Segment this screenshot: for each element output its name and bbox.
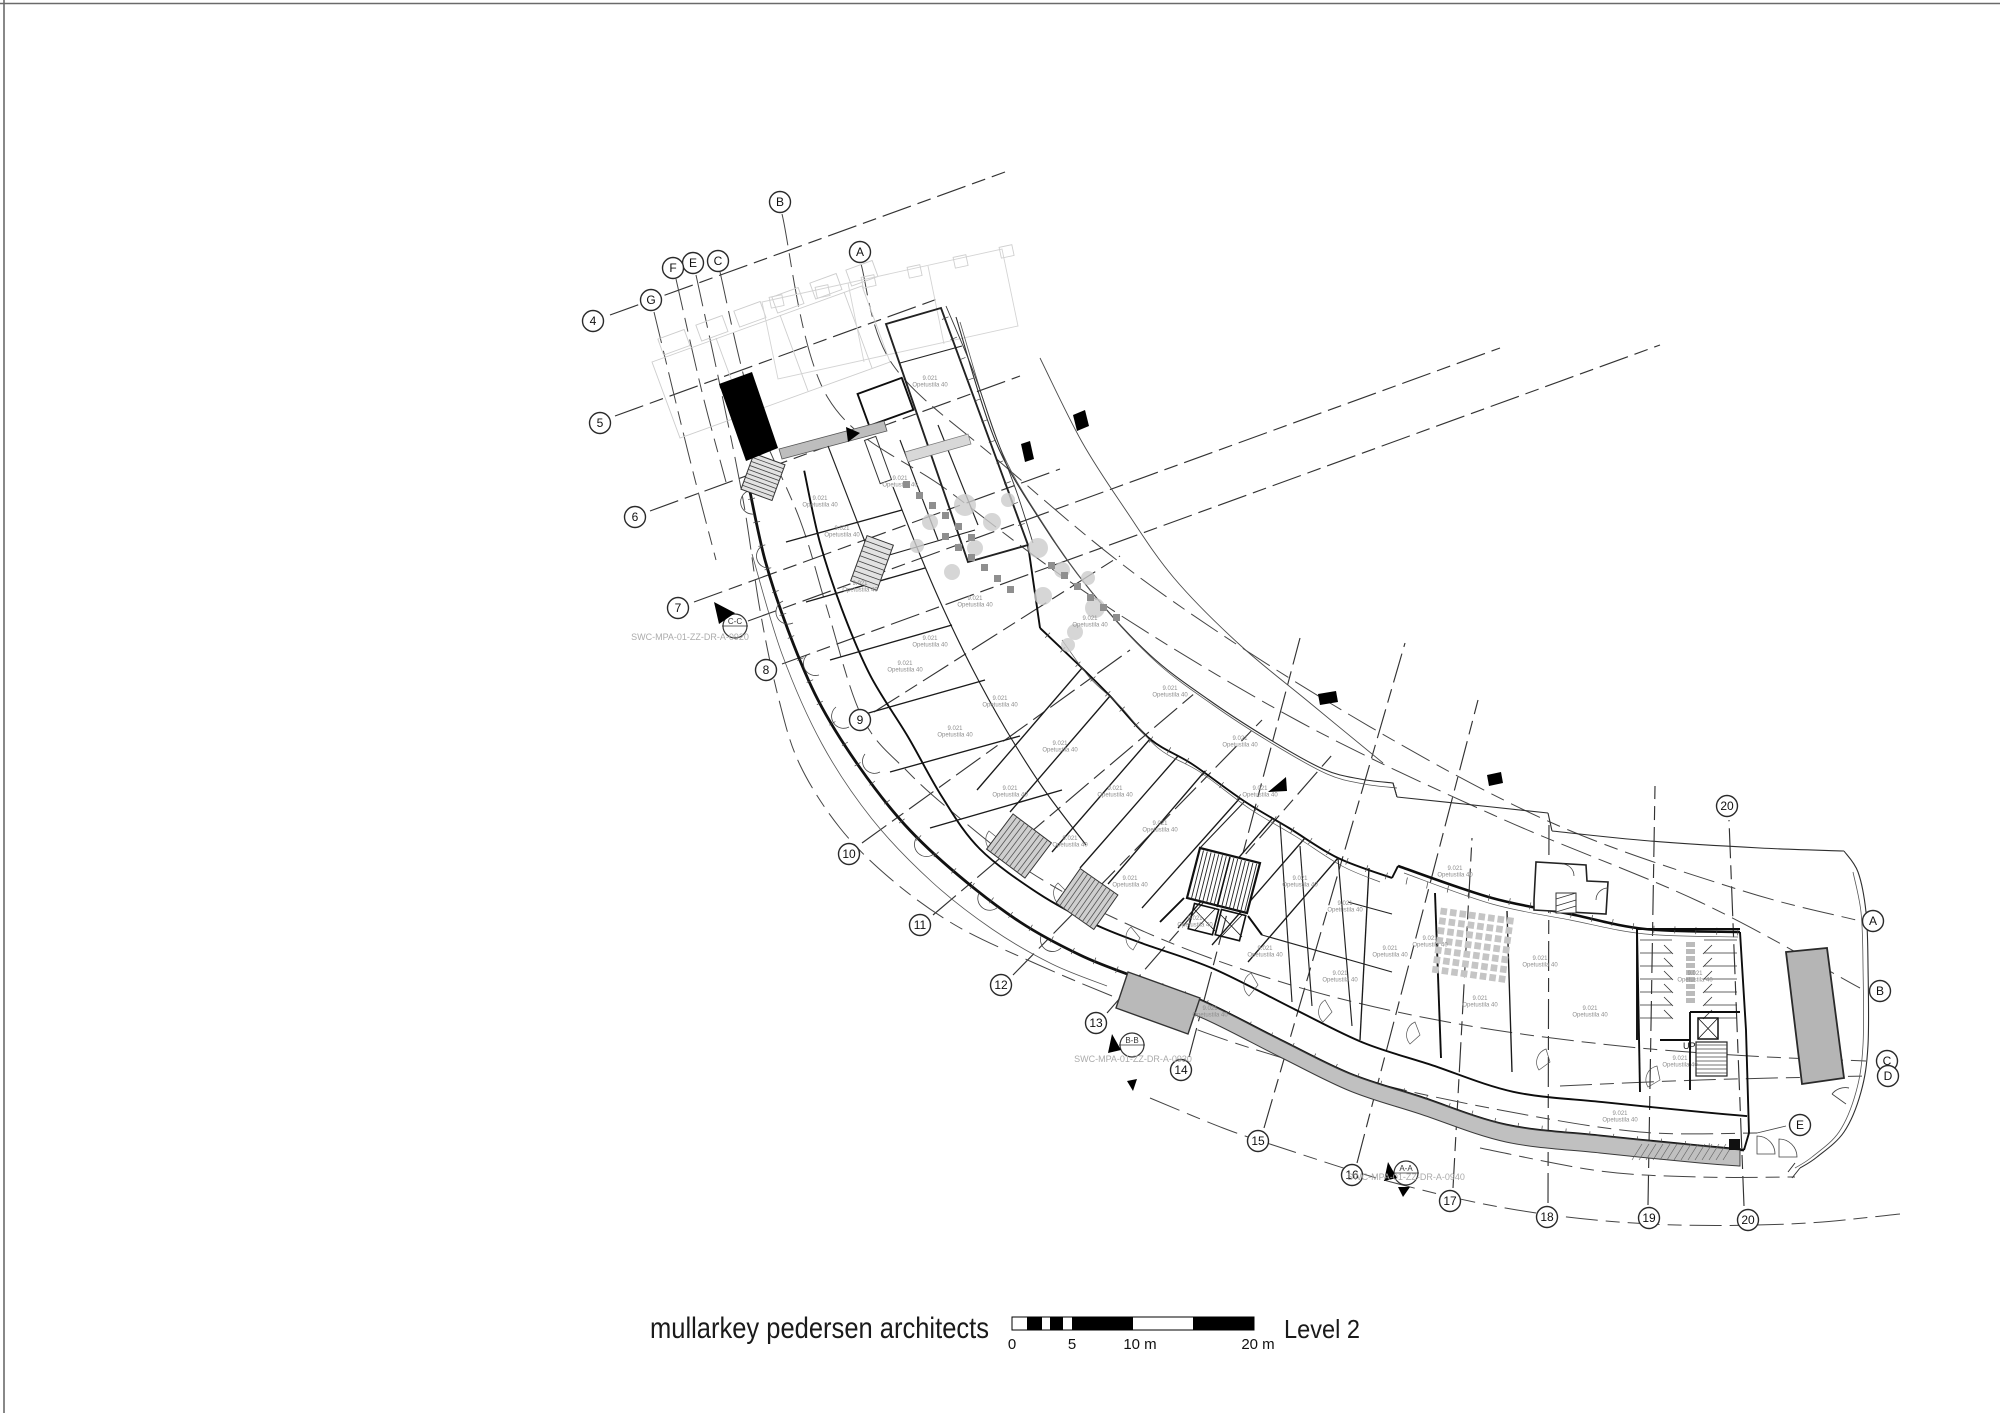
svg-text:9.021Opetustila 40: 9.021Opetustila 40: [912, 376, 948, 389]
svg-text:4: 4: [590, 314, 597, 328]
svg-text:9.021Opetustila 40: 9.021Opetustila 40: [1242, 786, 1278, 799]
svg-text:SWC-MPA-01-ZZ-DR-A-0930: SWC-MPA-01-ZZ-DR-A-0930: [1074, 1054, 1192, 1064]
svg-text:G: G: [646, 293, 655, 307]
svg-text:9: 9: [857, 713, 864, 727]
svg-text:D: D: [1884, 1069, 1893, 1083]
svg-text:E: E: [1796, 1118, 1804, 1132]
svg-text:B-B: B-B: [1125, 1036, 1138, 1045]
svg-text:18: 18: [1540, 1210, 1554, 1224]
svg-text:5: 5: [597, 416, 604, 430]
svg-text:9.021Opetustila 40: 9.021Opetustila 40: [1142, 821, 1178, 834]
svg-text:C: C: [714, 254, 723, 268]
svg-text:9.021Opetustila 40: 9.021Opetustila 40: [1572, 1006, 1608, 1019]
svg-text:14: 14: [1174, 1063, 1188, 1077]
svg-text:9.021Opetustila 40: 9.021Opetustila 40: [1522, 956, 1558, 969]
svg-text:9.021Opetustila 40: 9.021Opetustila 40: [1097, 786, 1133, 799]
svg-text:9.021Opetustila 40: 9.021Opetustila 40: [887, 661, 923, 674]
svg-text:9.021Opetustila 40: 9.021Opetustila 40: [1072, 616, 1108, 629]
svg-text:9.021Opetustila 40: 9.021Opetustila 40: [882, 476, 918, 489]
svg-text:9.021Opetustila 40: 9.021Opetustila 40: [1437, 866, 1473, 879]
svg-text:15: 15: [1251, 1134, 1265, 1148]
svg-text:11: 11: [914, 918, 927, 932]
svg-text:9.021Opetustila 40: 9.021Opetustila 40: [912, 636, 948, 649]
svg-text:9.021Opetustila 40: 9.021Opetustila 40: [1677, 971, 1713, 984]
svg-text:B: B: [1876, 984, 1884, 998]
svg-text:9.021Opetustila 40: 9.021Opetustila 40: [937, 726, 973, 739]
svg-text:C-C: C-C: [728, 617, 742, 626]
svg-text:8: 8: [763, 663, 770, 677]
svg-text:0: 0: [1008, 1336, 1016, 1353]
svg-text:9.021Opetustila 40: 9.021Opetustila 40: [1462, 996, 1498, 1009]
svg-text:SWC-MPA-01-ZZ-DR-A-0940: SWC-MPA-01-ZZ-DR-A-0940: [1347, 1172, 1465, 1182]
svg-text:Level 2: Level 2: [1284, 1314, 1360, 1344]
svg-text:9.021Opetustila 40: 9.021Opetustila 40: [802, 496, 838, 509]
svg-text:E: E: [689, 256, 697, 270]
svg-text:9.021Opetustila 40: 9.021Opetustila 40: [1177, 916, 1213, 929]
svg-text:7: 7: [675, 601, 682, 615]
svg-text:9.021Opetustila 40: 9.021Opetustila 40: [1112, 876, 1148, 889]
svg-text:9.021Opetustila 40: 9.021Opetustila 40: [1152, 686, 1188, 699]
svg-text:B: B: [776, 195, 784, 209]
svg-text:9.021Opetustila 40: 9.021Opetustila 40: [1052, 836, 1088, 849]
svg-text:9.021Opetustila 40: 9.021Opetustila 40: [1322, 971, 1358, 984]
svg-text:9.021Opetustila 40: 9.021Opetustila 40: [824, 526, 860, 539]
svg-text:SWC-MPA-01-ZZ-DR-A-0920: SWC-MPA-01-ZZ-DR-A-0920: [631, 632, 749, 642]
svg-text:12: 12: [994, 978, 1008, 992]
svg-text:A: A: [1869, 914, 1877, 928]
svg-text:10: 10: [842, 847, 856, 861]
svg-text:20: 20: [1720, 799, 1734, 813]
svg-text:9.021Opetustila 40: 9.021Opetustila 40: [1282, 876, 1318, 889]
svg-text:9.021Opetustila 40: 9.021Opetustila 40: [1042, 741, 1078, 754]
svg-text:9.021Opetustila 40: 9.021Opetustila 40: [1602, 1111, 1638, 1124]
svg-text:A: A: [856, 245, 864, 259]
svg-text:9.021Opetustila 40: 9.021Opetustila 40: [1372, 946, 1408, 959]
svg-text:9.021Opetustila 40: 9.021Opetustila 40: [1662, 1056, 1698, 1069]
svg-text:6: 6: [632, 510, 639, 524]
svg-text:20 m: 20 m: [1241, 1336, 1274, 1353]
svg-text:F: F: [669, 261, 676, 275]
svg-text:9.021Opetustila 40: 9.021Opetustila 40: [1222, 736, 1258, 749]
svg-text:10 m: 10 m: [1123, 1336, 1156, 1353]
svg-text:19: 19: [1642, 1211, 1656, 1225]
svg-text:9.021Opetustila 40: 9.021Opetustila 40: [1247, 946, 1283, 959]
svg-text:mullarkey pedersen architects: mullarkey pedersen architects: [650, 1312, 989, 1345]
svg-text:20: 20: [1741, 1213, 1755, 1227]
svg-text:17: 17: [1443, 1194, 1457, 1208]
svg-text:13: 13: [1089, 1016, 1103, 1030]
svg-text:9.021Opetustila 40: 9.021Opetustila 40: [992, 786, 1028, 799]
svg-text:5: 5: [1068, 1336, 1076, 1353]
svg-text:9.021Opetustila 40: 9.021Opetustila 40: [1327, 901, 1363, 914]
